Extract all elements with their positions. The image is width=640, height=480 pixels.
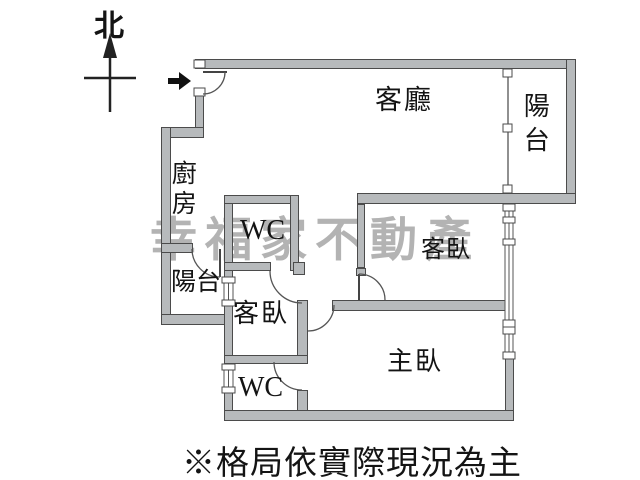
window-east-long xyxy=(503,204,515,327)
balcony-divider-window xyxy=(503,69,512,193)
room-label-living-room: 客廳 xyxy=(375,86,433,114)
room-label-kitchen: 廚房 xyxy=(168,160,194,220)
north-label: 北 xyxy=(94,1,124,45)
entry-door xyxy=(194,60,227,96)
bedroom-right-door-arc xyxy=(359,274,385,300)
room-label-wc-upper: WC xyxy=(240,216,285,245)
window-west-wc-lower xyxy=(222,364,235,393)
entry-door-arc xyxy=(203,72,225,94)
entrance-arrow-icon xyxy=(168,72,191,90)
entry-door-jamb-bottom xyxy=(194,88,205,96)
master-door-arc xyxy=(308,305,334,331)
disclaimer-note: ※格局依實際現況為主 xyxy=(182,436,522,480)
entry-door-jamb-top xyxy=(194,60,205,68)
bedroom-right-door xyxy=(359,274,385,300)
room-label-bedroom-right: 客臥 xyxy=(421,238,471,263)
room-label-bedroom-left: 客臥 xyxy=(233,300,289,327)
floor-plan: 幸福家不動產 xyxy=(0,0,640,480)
room-label-wc-lower: WC xyxy=(238,373,283,402)
room-label-balcony-left: 陽台 xyxy=(171,270,221,296)
room-label-master-bedroom: 主臥 xyxy=(387,348,443,375)
room-label-balcony-right: 陽台 xyxy=(521,92,548,160)
window-east-short xyxy=(503,327,515,359)
